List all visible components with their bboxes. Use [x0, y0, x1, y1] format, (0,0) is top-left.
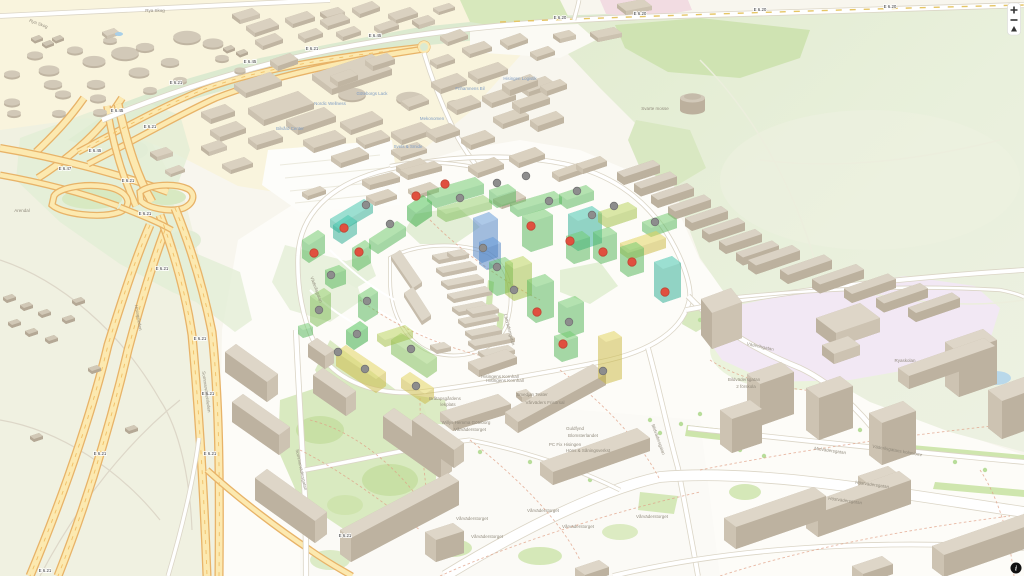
svg-text:E 6.21: E 6.21 — [170, 80, 183, 85]
svg-text:Nordic Wellness: Nordic Wellness — [314, 101, 346, 106]
svg-text:Guldfynd: Guldfynd — [566, 426, 585, 431]
svg-text:E 6.21: E 6.21 — [39, 568, 52, 573]
svg-text:Göteborgs Lack: Göteborgs Lack — [357, 91, 389, 96]
svg-text:E 6.21: E 6.21 — [94, 451, 107, 456]
svg-text:Höns & Såningsverkst: Höns & Såningsverkst — [566, 447, 611, 453]
svg-text:i: i — [1015, 565, 1017, 573]
svg-text:Vårväderstorget: Vårväderstorget — [454, 426, 487, 432]
svg-text:Rya Skog: Rya Skog — [145, 8, 165, 13]
svg-text:Willys Hemma Göteborg: Willys Hemma Göteborg — [442, 420, 491, 425]
svg-text:Svets & Smide: Svets & Smide — [394, 144, 423, 149]
svg-text:Bildvädersgatan: Bildvädersgatan — [728, 377, 761, 382]
svg-text:E 6.21: E 6.21 — [194, 336, 207, 341]
svg-text:Bråtapsgårdens: Bråtapsgårdens — [429, 395, 462, 401]
svg-text:E 6.45: E 6.45 — [111, 108, 124, 113]
svg-text:Mekonomen: Mekonomen — [420, 116, 445, 121]
svg-text:E 6.21: E 6.21 — [156, 266, 169, 271]
svg-text:E 6.47: E 6.47 — [59, 166, 72, 171]
svg-text:E 6.21: E 6.21 — [144, 124, 157, 129]
svg-text:E 6.20: E 6.20 — [884, 4, 897, 9]
svg-text:E 6.21: E 6.21 — [122, 178, 135, 183]
svg-text:Blomsterlandet: Blomsterlandet — [568, 433, 599, 438]
svg-text:E 6.45: E 6.45 — [89, 148, 102, 153]
svg-text:E 6.21: E 6.21 — [139, 211, 152, 216]
svg-text:Vårväderstorget: Vårväderstorget — [527, 507, 560, 513]
svg-text:Arendal: Arendal — [14, 208, 30, 213]
svg-text:E 6.45: E 6.45 — [244, 59, 257, 64]
svg-text:E 6.21: E 6.21 — [306, 46, 319, 51]
svg-text:Frihamnens Bil: Frihamnens Bil — [455, 86, 484, 91]
svg-text:E 6.20: E 6.20 — [554, 15, 567, 20]
svg-text:Vårväders Frisörsal: Vårväders Frisörsal — [525, 399, 564, 405]
svg-text:E 6.21: E 6.21 — [204, 451, 217, 456]
svg-text:E 6.20: E 6.20 — [634, 11, 647, 16]
svg-text:Vårväderstorget: Vårväderstorget — [636, 513, 669, 519]
svg-text:Vårväderstorget: Vårväderstorget — [562, 523, 595, 529]
svg-text:Hisingen Logistik: Hisingen Logistik — [503, 76, 537, 81]
svg-text:lekplats: lekplats — [440, 402, 456, 407]
svg-text:Smedjan Teater: Smedjan Teater — [516, 392, 548, 397]
svg-text:Ryaskolan: Ryaskolan — [894, 358, 916, 363]
svg-text:Hisingens Kornhall: Hisingens Kornhall — [481, 374, 519, 379]
svg-text:E 6.20: E 6.20 — [754, 7, 767, 12]
svg-text:E 6.21: E 6.21 — [339, 533, 352, 538]
svg-text:Bilvård Center: Bilvård Center — [276, 126, 304, 131]
svg-text:Vårväderstorget: Vårväderstorget — [471, 533, 504, 539]
svg-text:PC Fix Hisingen: PC Fix Hisingen — [549, 442, 582, 447]
svg-text:Vårväderstorget: Vårväderstorget — [456, 515, 489, 521]
svg-text:Svarte mosse: Svarte mosse — [641, 106, 669, 111]
svg-text:E 6.45: E 6.45 — [369, 33, 382, 38]
svg-text:2 förskola: 2 förskola — [736, 384, 756, 389]
